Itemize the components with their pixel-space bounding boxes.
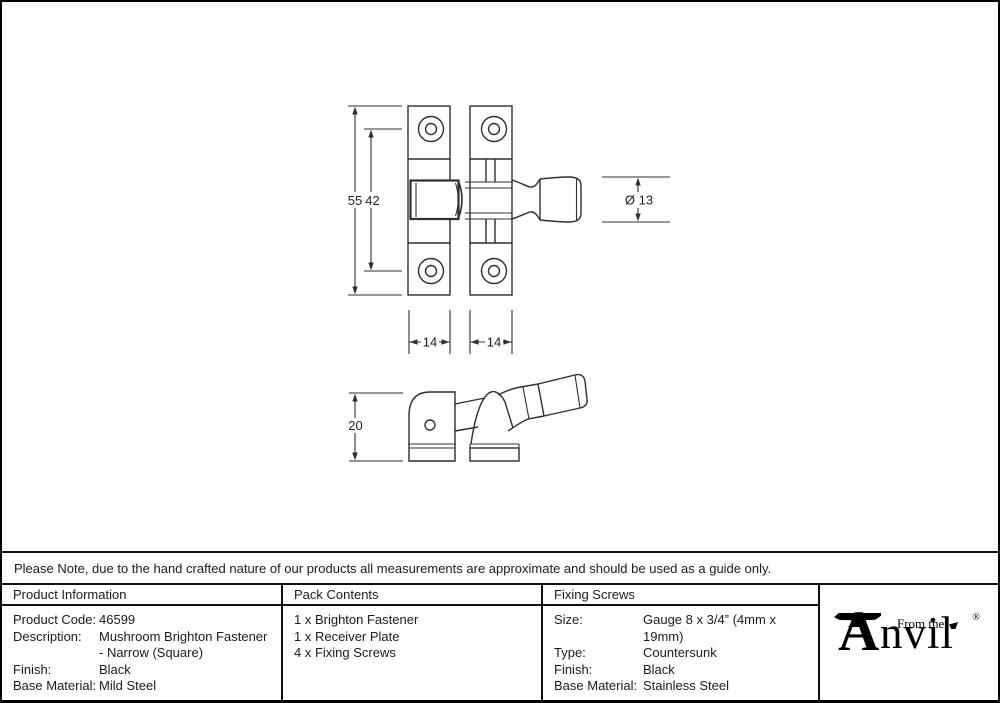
product-info-header: Product Information <box>2 585 281 606</box>
dim-keep-plate-width: 14 <box>423 335 437 350</box>
spec-value: Mild Steel <box>99 678 270 695</box>
list-item: 1 x Brighton Fastener <box>294 612 530 629</box>
spec-label: Product Code: <box>13 612 99 629</box>
fixing-screws-header: Fixing Screws <box>543 585 818 606</box>
dimension-labels: 55 42 Ø 13 14 14 20 <box>348 193 653 434</box>
logo-letter-a: A <box>838 603 879 660</box>
pack-contents-body: 1 x Brighton Fastener 1 x Receiver Plate… <box>283 606 541 662</box>
table-row: Base Material: Stainless Steel <box>554 678 807 695</box>
spec-value: 46599 <box>99 612 270 629</box>
from-the-anvil-logo: A From the nvil ® <box>838 615 980 665</box>
spec-value: Black <box>643 662 807 679</box>
registered-trademark-symbol: ® <box>972 612 980 623</box>
pack-contents-header: Pack Contents <box>283 585 541 606</box>
spec-label: Description: <box>13 629 99 646</box>
pack-contents-column: Pack Contents 1 x Brighton Fastener 1 x … <box>283 585 543 700</box>
dim-depth: 20 <box>348 418 362 433</box>
front-view-fastener <box>408 106 581 295</box>
spec-value: Gauge 8 x 3/4” (4mm x 19mm) <box>643 612 807 645</box>
product-info-body: Product Code: 46599 Description: Mushroo… <box>2 606 281 695</box>
measurement-note-bar: Please Note, due to the hand crafted nat… <box>2 551 998 585</box>
table-row: Base Material: Mild Steel <box>13 678 270 695</box>
table-row: - Narrow (Square) <box>13 645 270 662</box>
spec-value: Mushroom Brighton Fastener <box>99 629 270 646</box>
spec-label: Type: <box>554 645 643 662</box>
product-info-column: Product Information Product Code: 46599 … <box>2 585 283 700</box>
brand-logo-cell: A From the nvil ® <box>820 585 998 700</box>
spec-table: Product Information Product Code: 46599 … <box>2 585 998 700</box>
side-view-fastener <box>409 375 587 461</box>
table-row: Finish: Black <box>13 662 270 679</box>
spec-label: Base Material: <box>13 678 99 695</box>
table-row: Size: Gauge 8 x 3/4” (4mm x 19mm) <box>554 612 807 645</box>
fixing-screws-column: Fixing Screws Size: Gauge 8 x 3/4” (4mm … <box>543 585 820 700</box>
spec-label: Finish: <box>13 662 99 679</box>
spec-value: - Narrow (Square) <box>99 645 270 662</box>
dim-hole-spacing: 42 <box>365 193 379 208</box>
spec-value: Stainless Steel <box>643 678 807 695</box>
spec-value: Countersunk <box>643 645 807 662</box>
datasheet-page: 55 42 Ø 13 14 14 20 Please Note, due to … <box>0 0 1000 703</box>
spec-label: Finish: <box>554 662 643 679</box>
technical-drawing: 55 42 Ø 13 14 14 20 <box>2 2 998 550</box>
dim-overall-height: 55 <box>348 193 362 208</box>
spec-value: Black <box>99 662 270 679</box>
table-row: Type: Countersunk <box>554 645 807 662</box>
list-item: 4 x Fixing Screws <box>294 645 530 662</box>
spec-label: Base Material: <box>554 678 643 695</box>
spec-label: Size: <box>554 612 643 645</box>
table-row: Description: Mushroom Brighton Fastener <box>13 629 270 646</box>
logo-nvil-text: nvil <box>880 606 954 660</box>
dim-receiver-plate-width: 14 <box>487 335 501 350</box>
list-item: 1 x Receiver Plate <box>294 629 530 646</box>
fixing-screws-body: Size: Gauge 8 x 3/4” (4mm x 19mm) Type: … <box>543 606 818 695</box>
table-row: Finish: Black <box>554 662 807 679</box>
dim-knob-diameter: Ø 13 <box>625 193 653 208</box>
measurement-note-text: Please Note, due to the hand crafted nat… <box>14 561 771 576</box>
spec-label <box>13 645 99 662</box>
table-row: Product Code: 46599 <box>13 612 270 629</box>
